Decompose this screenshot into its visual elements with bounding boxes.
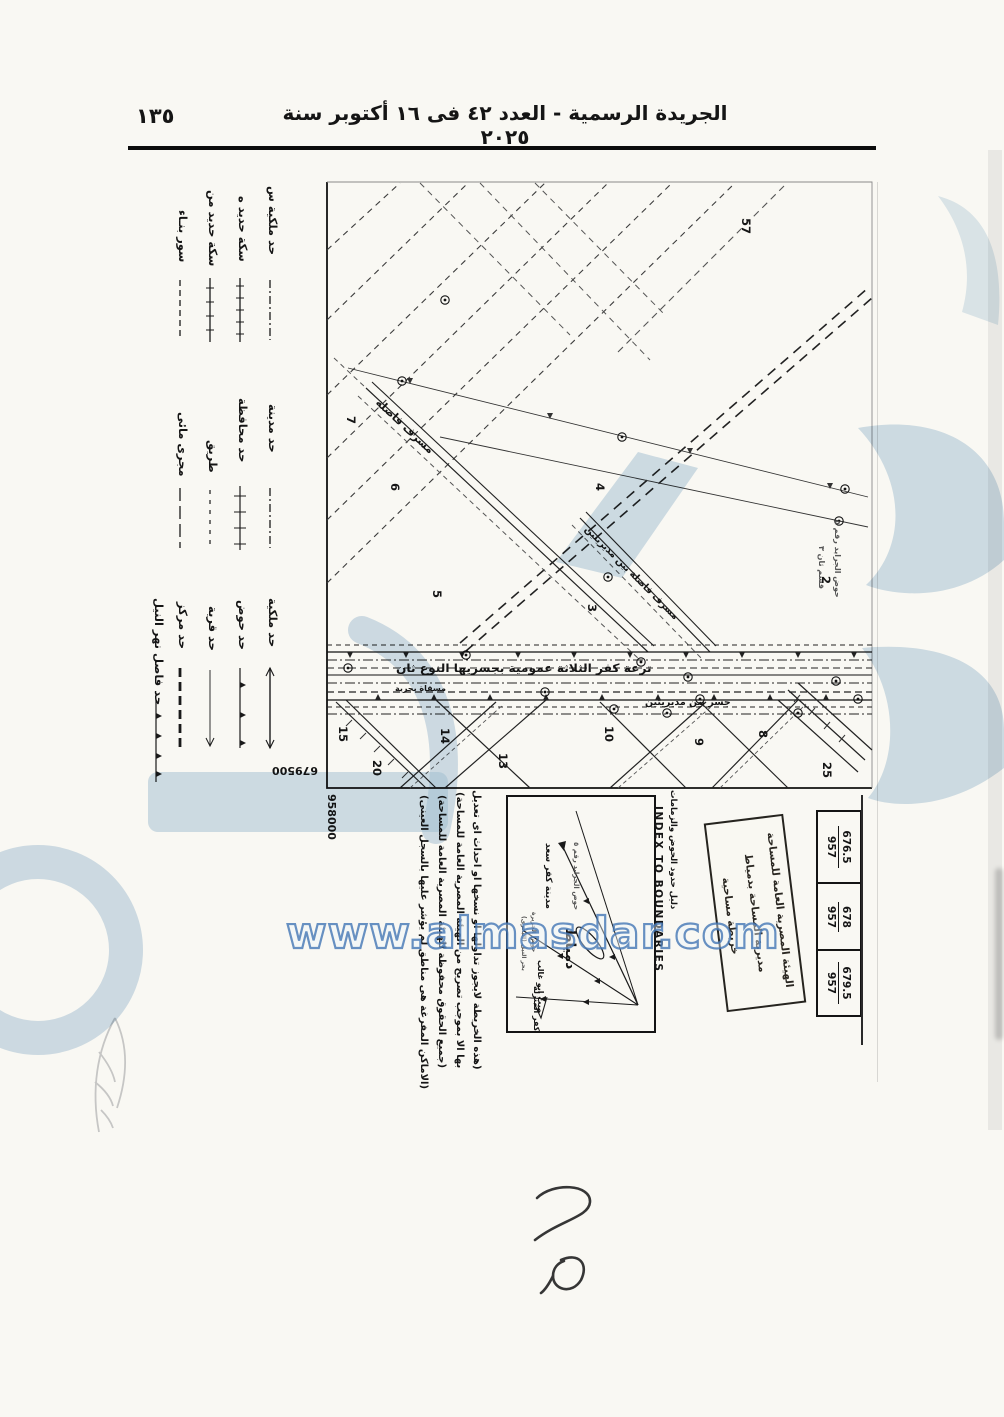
- canal-label: ترعة كفر الثلاثة عمومية بجسريها النوع ثا…: [396, 661, 652, 675]
- scan-edge-smudge: [995, 868, 1003, 1040]
- sheet-ref-value: 679.5: [839, 962, 853, 1003]
- plot-number: 4: [593, 483, 607, 491]
- legend-label: سور بنـاء: [176, 210, 190, 262]
- header-divider: [128, 146, 876, 150]
- legend-label: سكة حديد ه: [236, 196, 250, 262]
- almasdar-watermark-url: www.almasdar.com: [286, 908, 780, 959]
- sheet-ref-value: 957: [826, 972, 839, 994]
- sheet-ref-value: 678: [839, 902, 853, 932]
- legend-label: حد قرية: [206, 606, 220, 651]
- legend-label: طريق: [206, 440, 220, 473]
- bridge-label: جسر بين مديريتين: [645, 697, 731, 708]
- northing-coordinate: 958000: [325, 794, 338, 840]
- gazette-scan-page: { "page": { "number": "١٣٥", "header": "…: [0, 0, 1004, 1417]
- legend-label: حد ملكية س: [266, 186, 280, 255]
- sheet-ref-cell: 676.5957: [816, 810, 862, 884]
- legend-label: حد حوض: [236, 600, 250, 650]
- plot-number: 7: [344, 416, 358, 424]
- sheet-ref-cell: 679.5957: [816, 949, 862, 1017]
- canal-sub-label: مسقاة بحرية: [395, 684, 446, 693]
- sheet-ref-value: 957: [826, 836, 839, 858]
- plot-number: 3: [585, 604, 599, 612]
- survey-point-icons: [344, 296, 862, 717]
- plot-number: 57: [739, 218, 753, 234]
- plot-number: 10: [602, 726, 616, 742]
- legend-label: حد مدينة: [266, 404, 280, 453]
- index-place-kafr: كفر المنزلة: [532, 986, 541, 1031]
- feather-watermark: [75, 1010, 155, 1150]
- sheet-edge-line: [877, 182, 878, 1082]
- plot-number: 25: [820, 762, 834, 778]
- sheet-ref-cell: 678957: [816, 882, 862, 951]
- plot-number: 15: [336, 726, 350, 742]
- legend-label: حد فاصل نهر النيل: [152, 598, 166, 705]
- legend-symbols: [140, 170, 335, 820]
- plot-number: 2: [819, 576, 833, 584]
- plot-number: 14: [438, 728, 452, 744]
- easting-coordinate: 679500: [272, 764, 318, 777]
- plot-number: 6: [388, 483, 402, 491]
- index-place-city: مدينة كفر سعد: [543, 843, 553, 909]
- sheet-ref-frame-line: [861, 795, 863, 1045]
- plot-number: 13: [496, 753, 510, 769]
- legend-label: مجرى مائى: [176, 412, 190, 477]
- plot-number: 20: [370, 760, 384, 776]
- index-title-ar: دليل حدود الحوض والزمامات: [668, 790, 678, 909]
- plot-number: 9: [692, 738, 706, 746]
- legend-label: حد ملكية: [266, 598, 280, 647]
- sheet-ref-value: 957: [826, 906, 839, 928]
- legend-label: سكة حديد من: [206, 190, 220, 266]
- legend-label: حد محافظة: [236, 398, 250, 462]
- legend-label: حد مركز: [176, 602, 190, 649]
- signature-scribble: [495, 1160, 615, 1340]
- sheet-ref-value: 676.5: [839, 826, 853, 867]
- page-number: ١٣٥: [136, 104, 174, 128]
- index-place-basin: حوض الجرايد رقم ٥: [572, 842, 580, 910]
- plot-number: 8: [756, 730, 770, 738]
- page-title: الجريدة الرسمية - العدد ٤٢ فى ١٦ أكتوبر …: [255, 101, 755, 149]
- plot-number: 5: [430, 590, 444, 598]
- basin-note-1: حوض الجرايد رقم ٥: [833, 520, 842, 598]
